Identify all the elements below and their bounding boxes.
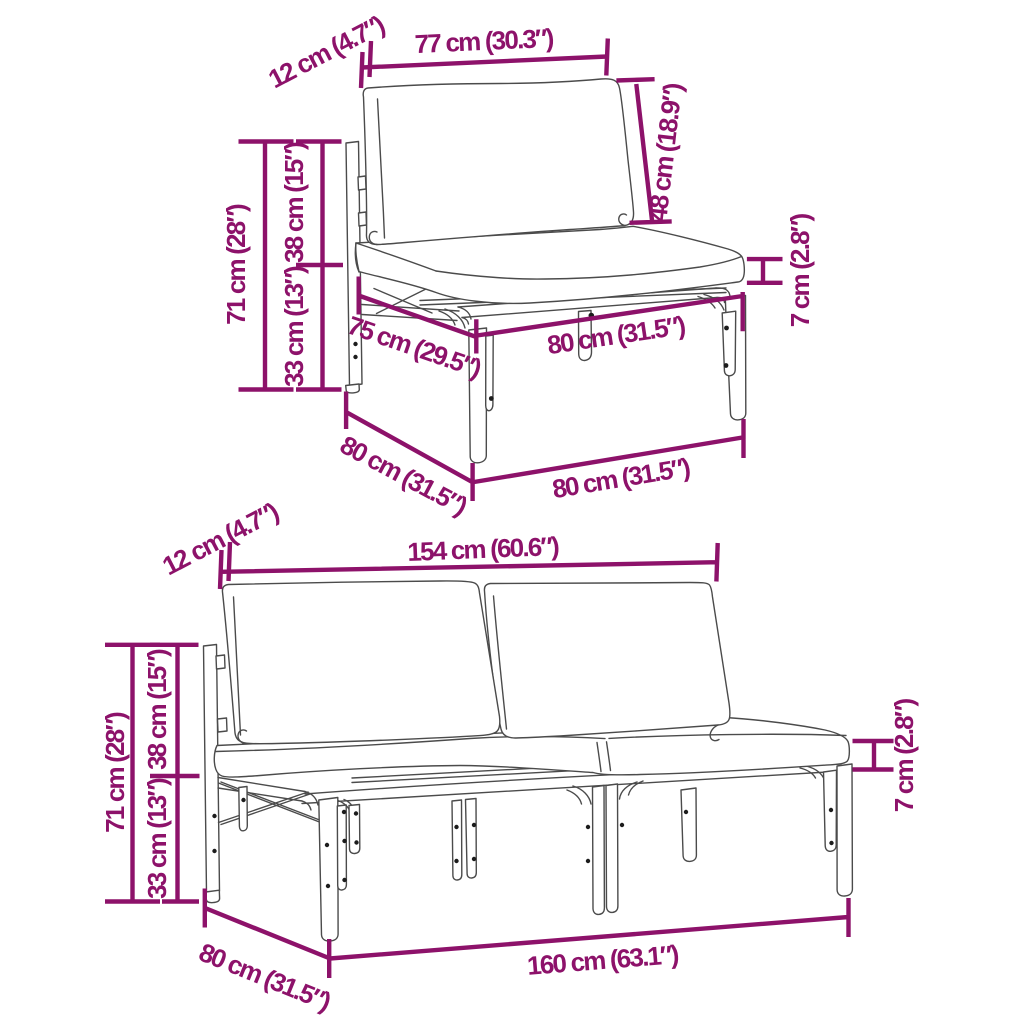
svg-text:154 cm (60.6″): 154 cm (60.6″) (407, 531, 560, 567)
svg-text:71 cm (28″): 71 cm (28″) (100, 712, 130, 833)
svg-text:71 cm (28″): 71 cm (28″) (221, 204, 251, 325)
svg-text:7 cm (2.8″): 7 cm (2.8″) (889, 699, 919, 813)
svg-text:77 cm (30.3″): 77 cm (30.3″) (414, 23, 554, 59)
svg-text:38 cm (15″): 38 cm (15″) (142, 649, 172, 770)
svg-text:33 cm (13″): 33 cm (13″) (142, 778, 172, 899)
svg-text:33 cm (13″): 33 cm (13″) (279, 266, 309, 387)
svg-text:7 cm (2.8″): 7 cm (2.8″) (785, 214, 815, 328)
svg-text:38 cm (15″): 38 cm (15″) (279, 142, 309, 263)
